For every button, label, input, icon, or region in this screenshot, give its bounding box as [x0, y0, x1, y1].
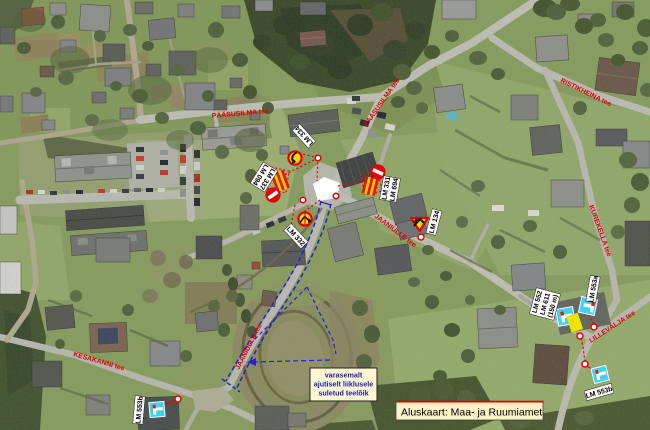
svg-text:varasemalt: varasemalt: [325, 371, 363, 380]
svg-text:ajutiselt liiklusele: ajutiselt liiklusele: [314, 380, 374, 389]
svg-text:Aluskaart: Maa- ja Ruumiamet: Aluskaart: Maa- ja Ruumiamet: [401, 407, 542, 419]
svg-text:suletud teelõik: suletud teelõik: [318, 389, 368, 398]
